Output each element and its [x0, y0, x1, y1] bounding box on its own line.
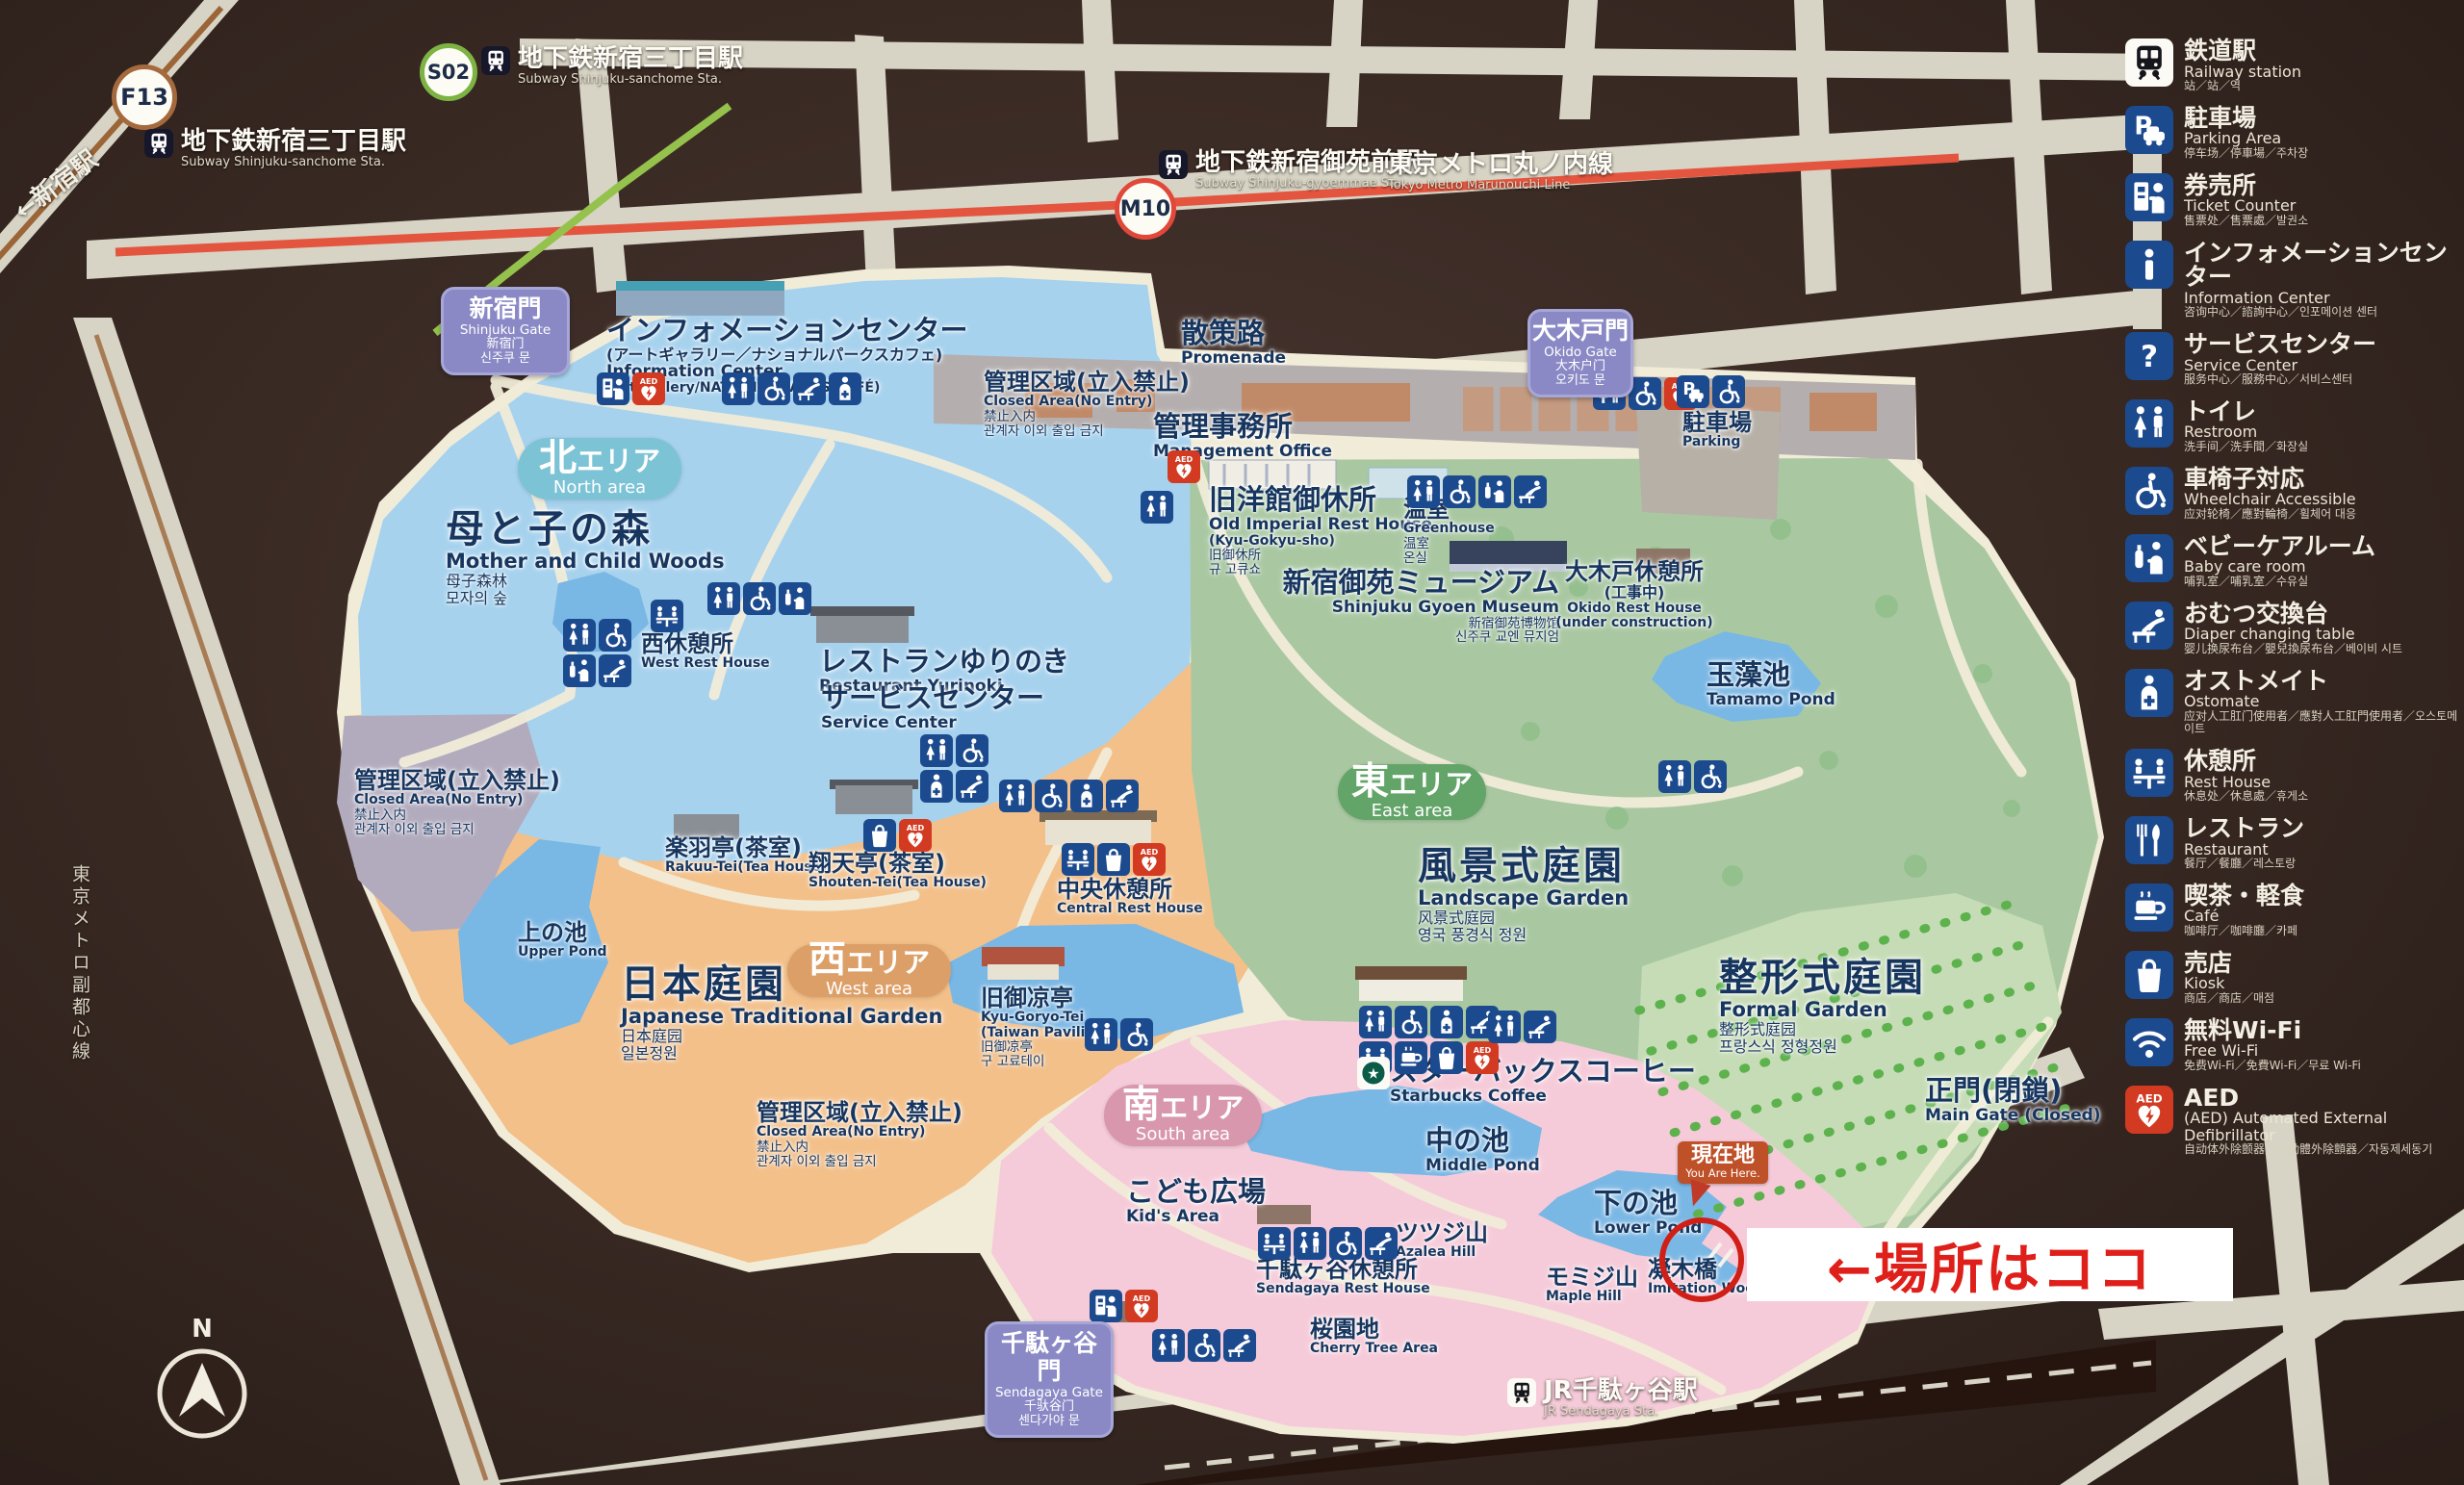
- legend-free-wifi-sub: 免费Wi-Fi／免費Wi-Fi／무료 Wi-Fi: [2184, 1060, 2361, 1073]
- parking-icon: P: [2125, 106, 2173, 154]
- label-closed-area-south-jp: 管理区域(立入禁止): [757, 1100, 962, 1125]
- pill-west-area-en: West area: [826, 979, 912, 1000]
- train-icon: [1159, 150, 1188, 179]
- station-label-shinjuku-sanchome-s02: 地下鉄新宿三丁目駅Subway Shinjuku-sanchome Sta.: [481, 46, 743, 87]
- station-label-shinjuku-sanchome-f13-jp: 地下鉄新宿三丁目駅: [181, 129, 406, 155]
- facility-icon-row: [1258, 1227, 1398, 1260]
- label-west-rest-house: 西休憩所West Rest House: [641, 631, 770, 672]
- legend-baby-care-room-en: Baby care room: [2184, 558, 2375, 576]
- label-service-center-jp: サービスセンター: [821, 683, 1044, 714]
- legend-item-ticket-counter: 券売所Ticket Counter售票处／售票處／발권소: [2125, 173, 2460, 228]
- legend-rest-house-jp: 休憩所: [2184, 749, 2308, 774]
- gate-shinjuku-cn: 新宿门: [446, 338, 565, 352]
- kiosk-icon: [1097, 843, 1130, 876]
- facility-icon-cluster: [1407, 475, 1547, 511]
- label-cherry-tree-area-en: Cherry Tree Area: [1310, 1342, 1438, 1356]
- legend-service-center-jp: サービスセンター: [2184, 332, 2376, 357]
- gate-shinjuku-kr: 신주쿠 문: [446, 352, 565, 367]
- ticket-icon: [2125, 173, 2173, 221]
- restroom-icon: [1085, 1018, 1117, 1051]
- label-formal-garden-cn: 整形式庭园: [1719, 1021, 1926, 1038]
- station-label-shinjuku-sanchome-s02-text: 地下鉄新宿三丁目駅Subway Shinjuku-sanchome Sta.: [518, 46, 743, 87]
- resthouse-icon: [1062, 843, 1094, 876]
- label-closed-area-west-jp: 管理区域(立入禁止): [354, 768, 560, 793]
- wheelchair-icon: [757, 372, 790, 405]
- station-label-shinjuku-gyoemmae-en: Subway Shinjuku-gyoemmae Sta.: [1195, 176, 1421, 191]
- facility-icon-row: AED: [1168, 450, 1200, 483]
- restroom-icon: [920, 734, 953, 767]
- gate-okido-jp: 大木戸門: [1532, 318, 1629, 346]
- legend-free-wifi-en: Free Wi-Fi: [2184, 1042, 2361, 1060]
- gate-sendagaya-jp: 千駄ヶ谷門: [989, 1330, 1109, 1386]
- pill-south-area-jp: 南エリア: [1122, 1087, 1244, 1124]
- facility-icon-cluster: AED: [597, 372, 665, 408]
- legend-cafe-en: Café: [2184, 908, 2304, 925]
- label-formal-garden: 整形式庭園Formal Garden整形式庭园프랑스식 정형정원: [1719, 957, 1926, 1055]
- facility-icon-row: [920, 734, 988, 767]
- legend-parking-area-jp: 駐車場: [2184, 106, 2308, 131]
- label-landscape-garden-jp: 風景式庭園: [1418, 845, 1629, 887]
- legend-baby-care-room-jp: ベビーケアルーム: [2184, 534, 2375, 559]
- aed-icon: AED: [1133, 843, 1166, 876]
- diaper-icon: [1524, 1011, 1556, 1043]
- pill-east-area: 東エリアEast area: [1338, 764, 1486, 820]
- facility-icon-cluster: [920, 734, 988, 806]
- wheelchair-icon: [1395, 1006, 1427, 1038]
- park-map-sign: 鉄道駅Railway station站／站／역P駐車場Parking Area停…: [0, 0, 2464, 1485]
- label-closed-area-south-kr: 관계자 이외 출입 금지: [757, 1155, 962, 1169]
- pill-north-area: 北エリアNorth area: [518, 438, 681, 499]
- legend-rest-house-sub: 休息处／休息處／휴게소: [2184, 790, 2308, 804]
- label-promenade-jp: 散策路: [1181, 319, 1286, 349]
- svg-text:?: ?: [2141, 340, 2158, 374]
- label-mother-and-child-woods-jp: 母と子の森: [446, 508, 725, 550]
- label-gyoen-museum-en: Shinjuku Gyoen Museum: [1283, 599, 1559, 617]
- gate-okido-kr: 오키도 문: [1532, 374, 1629, 389]
- svg-text:AED: AED: [1474, 1045, 1492, 1055]
- label-closed-area-west: 管理区域(立入禁止)Closed Area(No Entry)禁止入内관계자 이…: [354, 768, 560, 836]
- label-mother-and-child-woods: 母と子の森Mother and Child Woods母子森林모자의 숲: [446, 508, 725, 606]
- gate-shinjuku: 新宿門Shinjuku Gate新宿门신주쿠 문: [441, 287, 570, 375]
- legend-item-service-center: ?サービスセンターService Center服务中心／服務中心／서비스센터: [2125, 332, 2460, 387]
- diaper-icon: [1514, 475, 1547, 508]
- label-central-rest-house: 中央休憩所Central Rest House: [1057, 877, 1203, 917]
- facility-icon-row: [1658, 760, 1727, 793]
- restroom-icon: [1359, 1006, 1392, 1038]
- legend-wheelchair-accessible-sub: 应对轮椅／應對輪椅／휠체어 대응: [2184, 508, 2356, 522]
- legend-text-parking-area: 駐車場Parking Area停车场／停車場／주차장: [2184, 106, 2308, 161]
- ostomate-icon: [920, 770, 953, 803]
- facility-icon-cluster: [1085, 1018, 1153, 1054]
- label-main-gate: 正門(閉鎖)Main Gate (Closed): [1925, 1076, 2101, 1125]
- line-label-marunouchi-jp: 東京メトロ丸ノ内線: [1388, 152, 1613, 178]
- legend-railway-station-en: Railway station: [2184, 64, 2301, 81]
- gate-okido-en: Okido Gate: [1532, 346, 1629, 361]
- label-maple-hill-jp: モミジ山: [1546, 1265, 1638, 1290]
- legend-aed-en: (AED) Automated External Defibrillator: [2184, 1110, 2460, 1143]
- ostomate-icon: [829, 372, 861, 405]
- label-middle-pond: 中の池Middle Pond: [1425, 1126, 1540, 1175]
- you-are-here-badge: 現在地 You Are Here.: [1678, 1141, 1768, 1184]
- legend-text-restaurant: レストランRestaurant餐厅／餐廳／레스토랑: [2184, 816, 2304, 871]
- diaper-icon: [2125, 602, 2173, 650]
- label-info-center-jp2: (アートギャラリー／ナショナルパークスカフェ): [606, 346, 968, 364]
- gate-sendagaya-cn: 千驮谷门: [989, 1400, 1109, 1415]
- wheelchair-icon: [1629, 377, 1661, 410]
- station-label-jr-sendagaya-text: JR千駄ヶ谷駅JR Sendagaya Sta.: [1544, 1378, 1698, 1419]
- diaper-icon: [793, 372, 826, 405]
- gate-sendagaya-kr: 센다가야 문: [989, 1415, 1109, 1429]
- facility-icon-cluster: [1258, 1227, 1398, 1263]
- legend-restaurant-jp: レストラン: [2184, 816, 2304, 841]
- label-formal-garden-kr: 프랑스식 정형정원: [1719, 1038, 1926, 1056]
- label-service-center-en: Service Center: [821, 714, 1044, 732]
- fukutoshin-line-label: 東京メトロ副都心線: [67, 864, 93, 1063]
- legend-kiosk-en: Kiosk: [2184, 975, 2274, 992]
- info-icon: [2125, 241, 2173, 289]
- gate-okido-cn: 大木户门: [1532, 360, 1629, 374]
- facility-icon-row: [563, 654, 631, 687]
- restroom-icon: [1407, 475, 1440, 508]
- legend-diaper-changing-table-en: Diaper changing table: [2184, 626, 2402, 643]
- label-gyoen-museum-jp: 新宿御苑ミュージアム: [1283, 568, 1559, 599]
- legend-text-cafe: 喫茶・軽食Café咖啡厅／咖啡廳／카페: [2184, 883, 2304, 938]
- station-label-shinjuku-sanchome-f13-en: Subway Shinjuku-sanchome Sta.: [181, 155, 406, 169]
- legend-text-aed: AED(AED) Automated External Defibrillato…: [2184, 1086, 2460, 1157]
- restroom-icon: [707, 582, 740, 615]
- aed-icon: AED: [1168, 450, 1200, 483]
- gate-sendagaya-en: Sendagaya Gate: [989, 1386, 1109, 1401]
- facility-icon-cluster: [1658, 760, 1727, 796]
- label-kids-area-en: Kid's Area: [1126, 1208, 1266, 1226]
- restroom-icon: [1658, 760, 1691, 793]
- label-closed-area-north-jp: 管理区域(立入禁止): [984, 370, 1190, 395]
- wheelchair-icon: [599, 619, 631, 652]
- label-parking-lot: 駐車場Parking: [1682, 410, 1752, 450]
- wheelchair-icon: [1120, 1018, 1153, 1051]
- legend-text-diaper-changing-table: おむつ交換台Diaper changing table婴儿换尿布台／嬰兒換尿布台…: [2184, 602, 2402, 656]
- legend-text-baby-care-room: ベビーケアルームBaby care room哺乳室／哺乳室／수유실: [2184, 534, 2375, 589]
- legend-diaper-changing-table-sub: 婴儿换尿布台／嬰兒換尿布台／베이비 시트: [2184, 643, 2402, 656]
- label-closed-area-west-en: Closed Area(No Entry): [354, 793, 560, 807]
- label-azalea-hill-jp: ツツジ山: [1396, 1220, 1488, 1245]
- label-upper-pond: 上の池Upper Pond: [518, 920, 607, 960]
- label-starbucks-en: Starbucks Coffee: [1390, 1088, 1696, 1106]
- legend-item-kiosk: 売店Kiosk商店／商店／매점: [2125, 951, 2460, 1006]
- label-greenhouse-cn: 温室: [1403, 537, 1495, 551]
- legend-text-ticket-counter: 券売所Ticket Counter售票处／售票處／발권소: [2184, 173, 2308, 228]
- station-label-shinjuku-sanchome-f13-text: 地下鉄新宿三丁目駅Subway Shinjuku-sanchome Sta.: [181, 129, 406, 169]
- legend-ostomate-jp: オストメイト: [2184, 669, 2460, 694]
- aed-icon: AED: [1125, 1290, 1158, 1322]
- label-management-office-jp: 管理事務所: [1153, 412, 1332, 443]
- legend-ticket-counter-en: Ticket Counter: [2184, 197, 2308, 215]
- label-sendagaya-rest-house-en: Sendagaya Rest House: [1256, 1282, 1430, 1296]
- line-label-marunouchi-text: 東京メトロ丸ノ内線Tokyo Metro Marunouchi Line: [1388, 152, 1613, 192]
- diaper-icon: [956, 770, 988, 803]
- legend-free-wifi-jp: 無料Wi-Fi: [2184, 1018, 2361, 1043]
- resthouse-icon: [651, 600, 683, 632]
- label-promenade: 散策路Promenade: [1181, 319, 1286, 368]
- diaper-icon: [1106, 780, 1139, 812]
- legend-cafe-jp: 喫茶・軽食: [2184, 883, 2304, 909]
- station-label-jr-sendagaya-en: JR Sendagaya Sta.: [1544, 1404, 1698, 1419]
- baby-icon: [2125, 534, 2173, 582]
- label-maple-hill-en: Maple Hill: [1546, 1290, 1638, 1304]
- label-okido-rest-house: 大木戸休憩所(工事中)Okido Rest House(under constr…: [1555, 559, 1712, 631]
- facility-icon-row: AED: [863, 819, 932, 852]
- legend-ostomate-en: Ostomate: [2184, 693, 2460, 710]
- label-okido-rest-house-jp: 大木戸休憩所: [1555, 559, 1712, 584]
- label-shouten-tei-en: Shouten-Tei(Tea House): [808, 876, 987, 890]
- cafe-icon: [1395, 1041, 1427, 1074]
- pill-east-area-jp: 東エリア: [1351, 763, 1473, 801]
- legend-service-center-sub: 服务中心／服務中心／서비스센터: [2184, 373, 2376, 387]
- legend-text-rest-house: 休憩所Rest House休息处／休息處／휴게소: [2184, 749, 2308, 804]
- train-icon: [144, 129, 173, 158]
- label-mother-and-child-woods-en: Mother and Child Woods: [446, 550, 725, 573]
- station-label-shinjuku-sanchome-f13: 地下鉄新宿三丁目駅Subway Shinjuku-sanchome Sta.: [144, 129, 406, 169]
- cafe-icon: [2125, 883, 2173, 932]
- facility-icon-row: [1141, 491, 1173, 524]
- restroom-icon: [722, 372, 755, 405]
- label-gyoen-museum: 新宿御苑ミュージアムShinjuku Gyoen Museum新宿御苑博物馆신주…: [1283, 568, 1559, 645]
- label-old-imperial-rest-house: 旧洋館御休所Old Imperial Rest House(Kyu-Gokyu-…: [1209, 485, 1432, 577]
- legend-ticket-counter-jp: 券売所: [2184, 173, 2308, 198]
- label-parking-lot-en: Parking: [1682, 435, 1752, 449]
- label-upper-pond-jp: 上の池: [518, 920, 607, 945]
- legend-panel: 鉄道駅Railway station站／站／역P駐車場Parking Area停…: [2125, 38, 2460, 1169]
- question-icon: ?: [2125, 332, 2173, 380]
- svg-text:AED: AED: [640, 376, 658, 386]
- label-service-center: サービスセンターService Center: [821, 683, 1044, 732]
- label-cherry-tree-area: 桜園地Cherry Tree Area: [1310, 1317, 1438, 1357]
- legend-service-center-en: Service Center: [2184, 357, 2376, 374]
- station-badge-f13: F13: [112, 64, 177, 130]
- legend-text-ostomate: オストメイトOstomate应对人工肛门使用者／應對人工肛門使用者／오스토메이트: [2184, 669, 2460, 737]
- restroom-icon: [1152, 1329, 1185, 1362]
- legend-ticket-counter-sub: 售票处／售票處／발권소: [2184, 215, 2308, 228]
- legend-item-cafe: 喫茶・軽食Café咖啡厅／咖啡廳／카페: [2125, 883, 2460, 938]
- label-cherry-tree-area-jp: 桜園地: [1310, 1317, 1438, 1342]
- label-info-center-jp: インフォメーションセンター: [606, 316, 968, 346]
- label-closed-area-west-cn: 禁止入内: [354, 808, 560, 823]
- legend-text-free-wifi: 無料Wi-FiFree Wi-Fi免费Wi-Fi／免費Wi-Fi／무료 Wi-F…: [2184, 1018, 2361, 1073]
- wheelchair-icon: [2125, 467, 2173, 515]
- label-greenhouse-kr: 온실: [1403, 551, 1495, 566]
- pill-north-area-en: North area: [553, 477, 646, 499]
- facility-icon-row: [1359, 1006, 1499, 1038]
- facility-icon-cluster: [651, 600, 683, 635]
- label-landscape-garden-cn: 风景式庭园: [1418, 909, 1629, 927]
- svg-text:AED: AED: [1133, 1293, 1151, 1303]
- station-label-shinjuku-gyoemmae-jp: 地下鉄新宿御苑前駅: [1195, 150, 1421, 176]
- wheelchair-icon: [1329, 1227, 1362, 1260]
- location-annotation: ←場所はココ: [1747, 1228, 2233, 1301]
- label-gyoen-museum-kr: 신주쿠 교엔 뮤지엄: [1283, 630, 1559, 645]
- legend-restroom-jp: トイレ: [2184, 399, 2308, 424]
- label-japanese-garden-kr: 일본정원: [621, 1045, 943, 1063]
- facility-icon-cluster: P: [1677, 375, 1745, 411]
- station-label-shinjuku-gyoemmae-text: 地下鉄新宿御苑前駅Subway Shinjuku-gyoemmae Sta.: [1195, 150, 1421, 191]
- baby-icon: [779, 582, 811, 615]
- aed-icon: AED: [1466, 1041, 1499, 1074]
- facility-icon-row: P: [1677, 375, 1745, 408]
- facility-icon-row: ★: [1357, 1057, 1390, 1089]
- label-landscape-garden-kr: 영국 풍경식 정원: [1418, 927, 1629, 944]
- diaper-icon: [599, 654, 631, 687]
- label-rakuu-tei-jp: 楽羽亭(茶室): [665, 835, 828, 860]
- facility-icon-row: [707, 582, 811, 615]
- label-old-imperial-rest-house-en2: (Kyu-Gokyu-sho): [1209, 534, 1432, 549]
- facility-icon-row: AED: [1062, 843, 1166, 876]
- aed-icon: AED: [2125, 1086, 2173, 1134]
- facility-icon-row: AED: [1090, 1290, 1158, 1322]
- kiosk-icon: [863, 819, 896, 852]
- label-closed-area-south-en: Closed Area(No Entry): [757, 1125, 962, 1139]
- facility-icon-row: [1407, 475, 1547, 508]
- legend-item-railway-station: 鉄道駅Railway station站／站／역: [2125, 38, 2460, 93]
- label-old-imperial-rest-house-en: Old Imperial Rest House: [1209, 516, 1432, 534]
- legend-kiosk-sub: 商店／商店／매점: [2184, 992, 2274, 1006]
- station-label-shinjuku-sanchome-s02-en: Subway Shinjuku-sanchome Sta.: [518, 72, 743, 87]
- legend-information-center-jp: インフォメーションセンター: [2184, 241, 2460, 290]
- compass-arrow-icon: [154, 1345, 250, 1442]
- legend-diaper-changing-table-jp: おむつ交換台: [2184, 602, 2402, 627]
- ticket-icon: [1090, 1290, 1122, 1322]
- compass-n-label: N: [154, 1315, 250, 1344]
- diaper-icon: [1223, 1329, 1256, 1362]
- label-closed-area-south: 管理区域(立入禁止)Closed Area(No Entry)禁止入内관계자 이…: [757, 1100, 962, 1168]
- facility-icon-cluster: [707, 582, 811, 618]
- wheelchair-icon: [1694, 760, 1727, 793]
- gate-shinjuku-jp: 新宿門: [446, 295, 565, 323]
- facility-icon-row: [722, 372, 861, 405]
- legend-aed-jp: AED: [2184, 1086, 2460, 1111]
- label-formal-garden-jp: 整形式庭園: [1719, 957, 1926, 999]
- wheelchair-icon: [1443, 475, 1476, 508]
- legend-item-free-wifi: 無料Wi-FiFree Wi-Fi免费Wi-Fi／免費Wi-Fi／무료 Wi-F…: [2125, 1018, 2460, 1073]
- label-closed-area-west-kr: 관계자 이외 출입 금지: [354, 823, 560, 837]
- label-okido-rest-house-jp2: (工事中): [1555, 584, 1712, 602]
- legend-parking-area-en: Parking Area: [2184, 130, 2308, 147]
- station-label-jr-sendagaya-jp: JR千駄ヶ谷駅: [1544, 1378, 1698, 1404]
- baby-icon: [1478, 475, 1511, 508]
- wheelchair-icon: [1712, 375, 1745, 408]
- label-landscape-garden: 風景式庭園Landscape Garden风景式庭园영국 풍경식 정원: [1418, 845, 1629, 943]
- facility-icon-row: AED: [597, 372, 665, 405]
- line-label-marunouchi: 東京メトロ丸ノ内線Tokyo Metro Marunouchi Line: [1388, 152, 1613, 192]
- label-old-imperial-rest-house-jp: 旧洋館御休所: [1209, 485, 1432, 516]
- station-label-shinjuku-gyoemmae: 地下鉄新宿御苑前駅Subway Shinjuku-gyoemmae Sta.: [1159, 150, 1421, 191]
- train-icon: [481, 46, 510, 75]
- facility-icon-cluster: [1488, 1011, 1556, 1046]
- facility-icon-row: [999, 780, 1139, 812]
- legend-item-diaper-changing-table: おむつ交換台Diaper changing table婴儿换尿布台／嬰兒換尿布台…: [2125, 602, 2460, 656]
- wheelchair-icon: [743, 582, 776, 615]
- restroom-icon: [563, 619, 596, 652]
- facility-icon-row: [563, 619, 631, 652]
- svg-text:AED: AED: [907, 823, 925, 832]
- label-central-rest-house-jp: 中央休憩所: [1057, 877, 1203, 902]
- pill-south-area: 南エリアSouth area: [1104, 1085, 1262, 1146]
- legend-parking-area-sub: 停车场／停車場／주차장: [2184, 147, 2308, 161]
- pill-north-area-jp: 北エリア: [539, 440, 660, 477]
- legend-item-rest-house: 休憩所Rest House休息处／休息處／휴게소: [2125, 749, 2460, 804]
- legend-ostomate-sub: 应对人工肛门使用者／應對人工肛門使用者／오스토메이트: [2184, 710, 2460, 737]
- station-badge-s02: S02: [420, 43, 477, 101]
- legend-item-parking-area: P駐車場Parking Area停车场／停車場／주차장: [2125, 106, 2460, 161]
- label-parking-lot-jp: 駐車場: [1682, 410, 1752, 435]
- restaurant-icon: [2125, 816, 2173, 864]
- wheelchair-icon: [956, 734, 988, 767]
- legend-item-restaurant: レストランRestaurant餐厅／餐廳／레스토랑: [2125, 816, 2460, 871]
- facility-icon-cluster: [999, 780, 1139, 815]
- facility-icon-cluster: [1141, 491, 1173, 526]
- restroom-icon: [1488, 1011, 1521, 1043]
- label-tamamo-pond-en: Tamamo Pond: [1707, 691, 1835, 709]
- label-kids-area: こども広場Kid's Area: [1126, 1177, 1266, 1226]
- wheelchair-icon: [1188, 1329, 1220, 1362]
- ostomate-icon: [1070, 780, 1103, 812]
- label-middle-pond-jp: 中の池: [1425, 1126, 1540, 1157]
- kiosk-icon: [2125, 951, 2173, 999]
- you-are-here-jp: 現在地: [1678, 1144, 1768, 1167]
- legend-restroom-sub: 洗手间／洗手間／화장실: [2184, 441, 2308, 454]
- facility-icon-cluster: AED: [1062, 843, 1166, 879]
- legend-cafe-sub: 咖啡厅／咖啡廳／카페: [2184, 925, 2304, 938]
- label-west-rest-house-en: West Rest House: [641, 656, 770, 671]
- line-label-marunouchi-en: Tokyo Metro Marunouchi Line: [1388, 178, 1613, 192]
- legend-rest-house-en: Rest House: [2184, 774, 2308, 791]
- legend-item-information-center: インフォメーションセンターInformation Center咨询中心／諮詢中心…: [2125, 241, 2460, 320]
- facility-icon-row: [1085, 1018, 1153, 1051]
- label-closed-area-south-cn: 禁止入内: [757, 1140, 962, 1155]
- label-kids-area-jp: こども広場: [1126, 1177, 1266, 1208]
- svg-text:AED: AED: [1141, 847, 1159, 857]
- label-central-rest-house-en: Central Rest House: [1057, 902, 1203, 916]
- facility-icon-cluster: [1152, 1329, 1256, 1365]
- facility-icon-row: [920, 770, 988, 803]
- baby-icon: [563, 654, 596, 687]
- label-sendagaya-rest-house: 千駄ヶ谷休憩所Sendagaya Rest House: [1256, 1257, 1430, 1297]
- restroom-icon: [2125, 399, 2173, 448]
- facility-icon-cluster: AED: [863, 819, 932, 855]
- kiosk-icon: [1430, 1041, 1463, 1074]
- label-restaurant-yurinoki-jp: レストランゆりのき: [819, 647, 1069, 678]
- starbucks-icon: ★: [1357, 1057, 1390, 1089]
- label-rakuu-tei: 楽羽亭(茶室)Rakuu-Tei(Tea House): [665, 835, 828, 876]
- wheelchair-icon: [1035, 780, 1067, 812]
- pill-east-area-en: East area: [1372, 801, 1453, 822]
- legend-information-center-sub: 咨询中心／諮詢中心／인포메이션 센터: [2184, 306, 2460, 320]
- legend-item-wheelchair-accessible: 車椅子対応Wheelchair Accessible应对轮椅／應對輪椅／휠체어 …: [2125, 467, 2460, 522]
- label-shouten-tei: 翔天亭(茶室)Shouten-Tei(Tea House): [808, 851, 987, 891]
- legend-wheelchair-accessible-en: Wheelchair Accessible: [2184, 491, 2356, 508]
- ostomate-icon: [2125, 669, 2173, 717]
- svg-text:★: ★: [1367, 1064, 1379, 1082]
- restroom-icon: [999, 780, 1032, 812]
- ostomate-icon: [1430, 1006, 1463, 1038]
- restroom-icon: [1141, 491, 1173, 524]
- legend-item-baby-care-room: ベビーケアルームBaby care room哺乳室／哺乳室／수유실: [2125, 534, 2460, 589]
- legend-item-ostomate: オストメイトOstomate应对人工肛门使用者／應對人工肛門使用者／오스토메이트: [2125, 669, 2460, 737]
- diaper-icon: [1365, 1227, 1398, 1260]
- label-tamamo-pond: 玉藻池Tamamo Pond: [1707, 660, 1835, 709]
- facility-icon-row: [1488, 1011, 1556, 1043]
- pill-west-area: 西エリアWest area: [787, 944, 951, 997]
- label-landscape-garden-en: Landscape Garden: [1418, 887, 1629, 909]
